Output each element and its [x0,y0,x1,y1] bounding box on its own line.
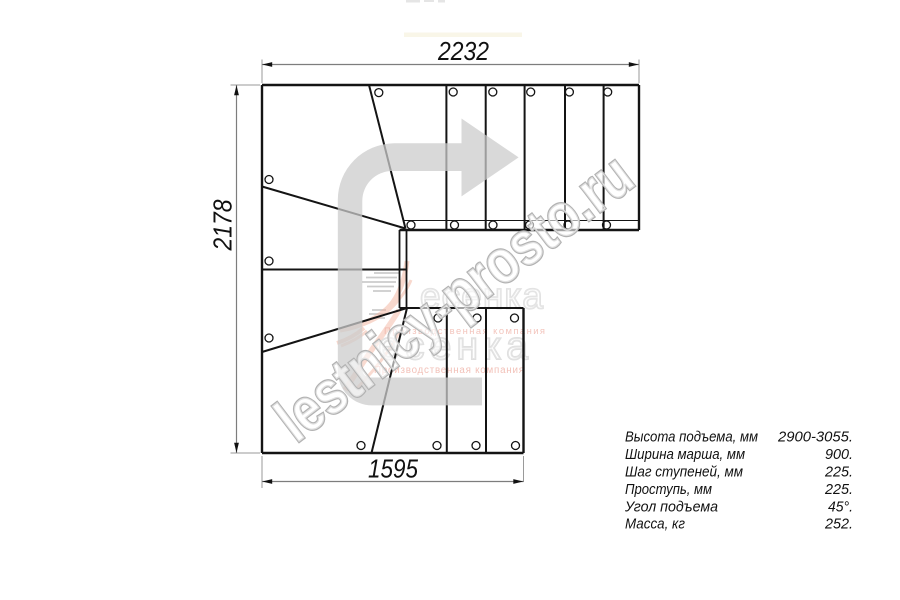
svg-text:1595: 1595 [368,454,418,484]
svg-text:900.: 900. [825,446,853,463]
svg-text:2900-3055.: 2900-3055. [777,429,853,446]
svg-text:225.: 225. [824,481,853,498]
svg-text:45°.: 45°. [828,498,853,515]
svg-text:252.: 252. [824,516,853,533]
svg-text:Высота подъема, мм: Высота подъема, мм [625,429,759,446]
svg-text:225.: 225. [824,464,853,481]
svg-text:lestnicy-prosto.ru: lestnicy-prosto.ru [263,140,646,455]
svg-text:2232: 2232 [437,36,489,66]
svg-text:Угол подъема: Угол подъема [624,498,718,515]
svg-text:Шаг ступеней, мм: Шаг ступеней, мм [625,464,744,481]
svg-text:Ширина марша, мм: Ширина марша, мм [625,446,746,463]
svg-text:2178: 2178 [208,199,238,251]
svg-text:Масса, кг: Масса, кг [625,516,685,533]
svg-text:Проступь, мм: Проступь, мм [625,481,713,498]
